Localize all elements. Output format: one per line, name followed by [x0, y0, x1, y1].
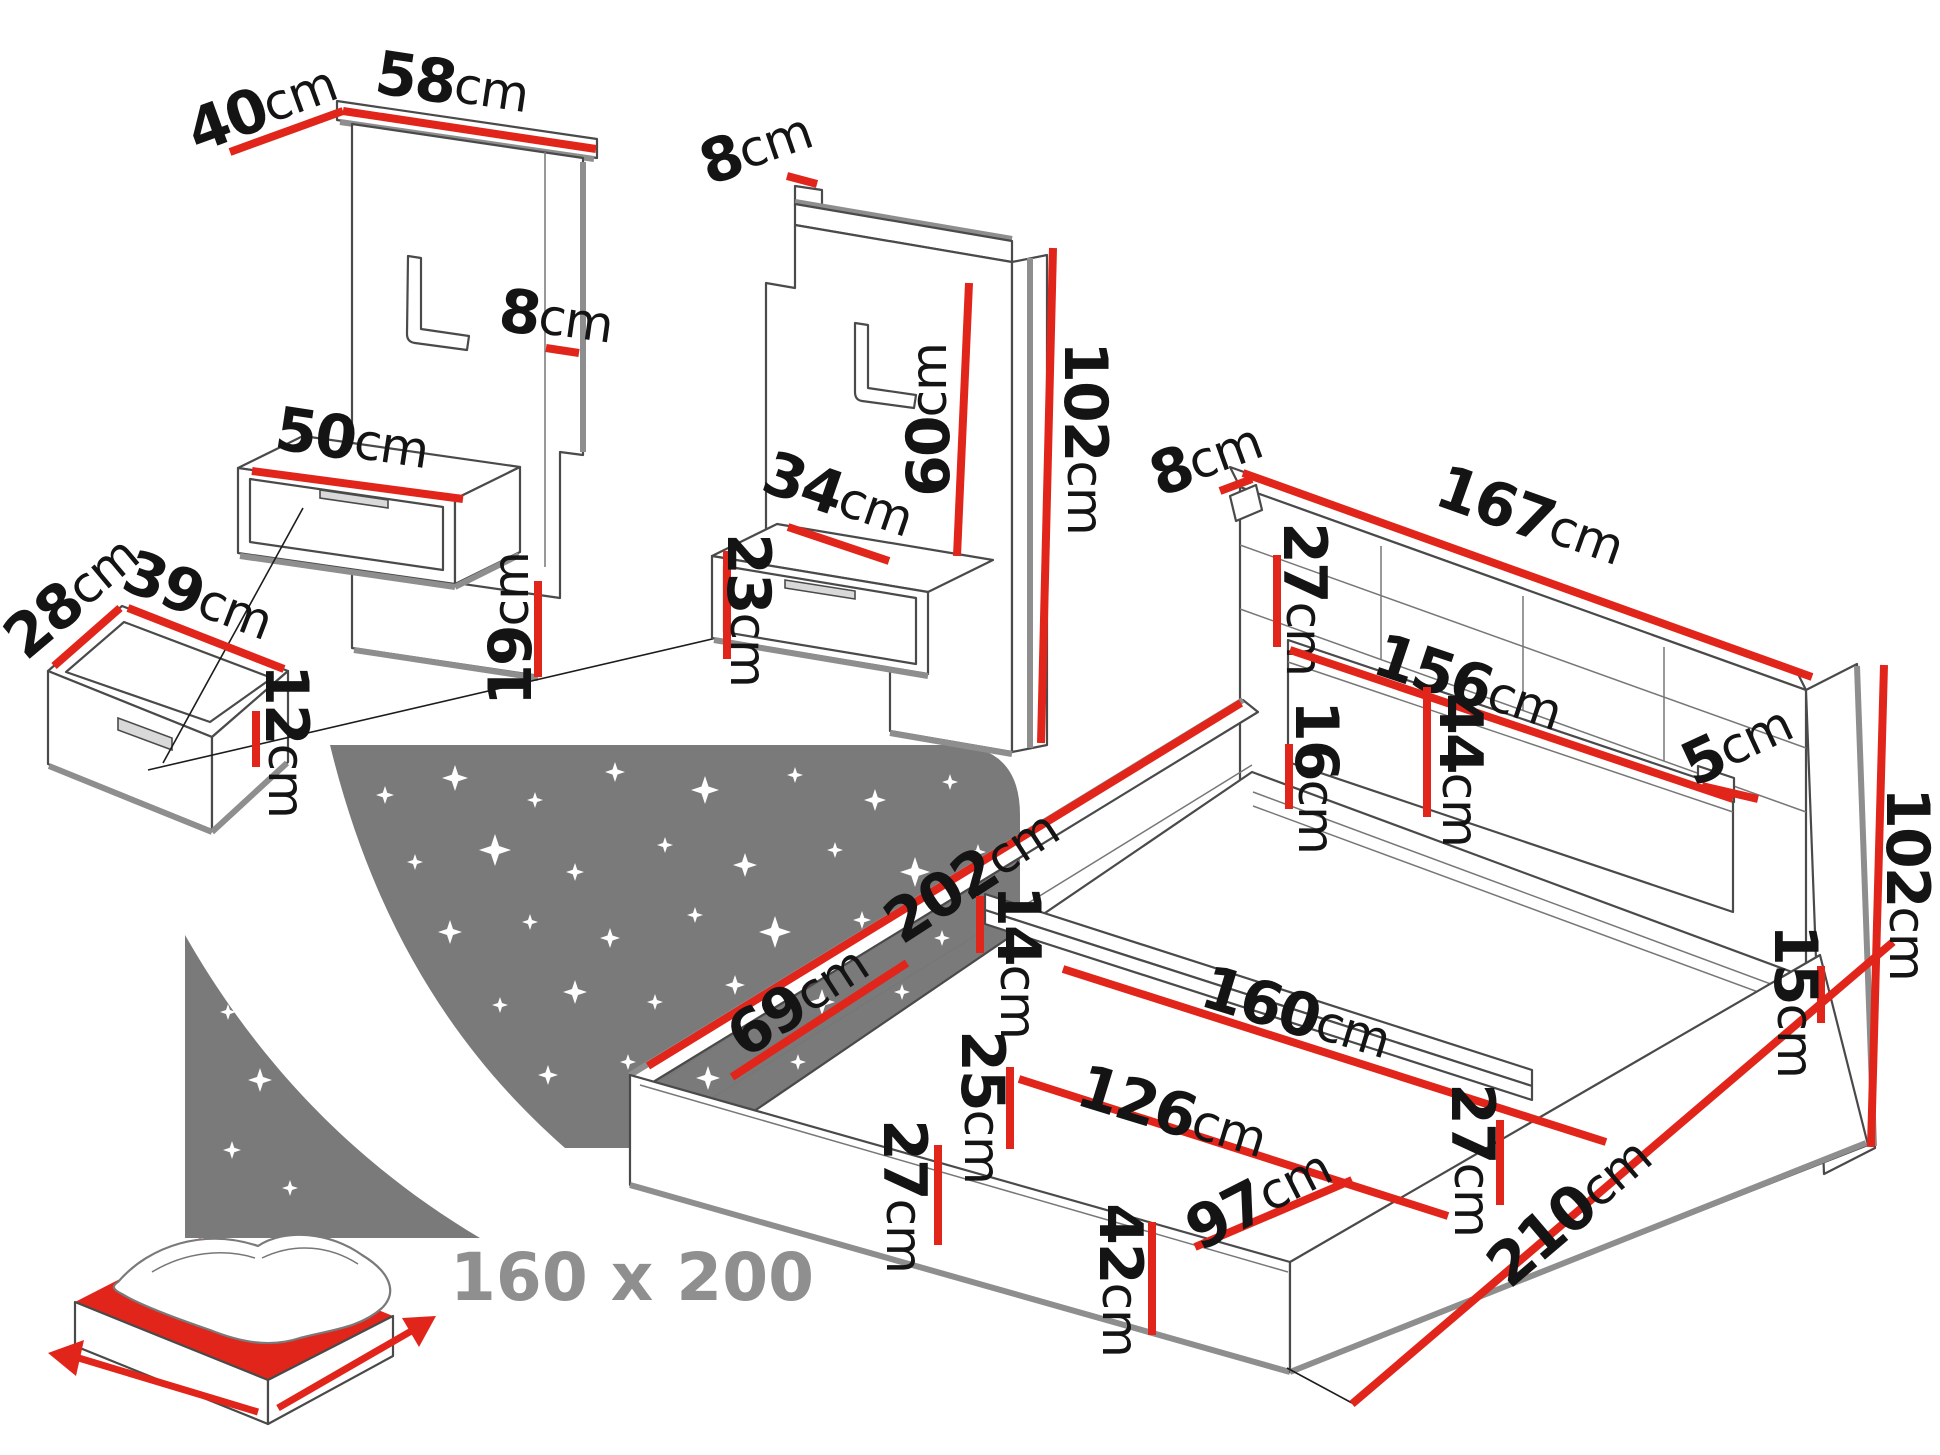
bedside-panel-front-view — [238, 101, 597, 678]
dimension-panel2-thickness: 8cm — [691, 96, 822, 199]
svg-text:27cm: 27cm — [1437, 1083, 1507, 1237]
svg-text:60cm: 60cm — [894, 343, 964, 497]
dimension-drawer-height: 12cm — [251, 664, 321, 818]
svg-text:102cm: 102cm — [1872, 787, 1940, 980]
dimension-panel2-shelf-height: 23cm — [713, 533, 783, 687]
svg-text:25cm: 25cm — [947, 1030, 1017, 1184]
svg-text:40cm: 40cm — [178, 49, 346, 167]
furniture-dimension-diagram: 160 x 200 — [0, 0, 1940, 1455]
svg-text:102cm: 102cm — [1050, 341, 1120, 534]
dimension-frame-front-height: 27cm — [869, 1119, 939, 1273]
dimension-frame-right-height: 27cm — [1437, 1083, 1507, 1237]
dimension-panel1-depth: 40cm — [178, 49, 346, 167]
svg-text:27cm: 27cm — [869, 1119, 939, 1273]
dimension-side-rail-height: 15cm — [1760, 924, 1830, 1078]
dimension-panel2-height: 102cm — [1041, 248, 1120, 743]
svg-text:23cm: 23cm — [713, 533, 783, 687]
dimension-bed-total-height: 102cm — [1871, 665, 1940, 1147]
dimension-panel1-foot-height: 19cm — [476, 552, 546, 706]
svg-text:19cm: 19cm — [476, 552, 546, 706]
dimension-mid-rail-height: 14cm — [980, 885, 1053, 1039]
svg-text:12cm: 12cm — [251, 664, 321, 818]
diagram-page: 160 x 200 — [0, 0, 1940, 1455]
svg-text:42cm: 42cm — [1085, 1203, 1155, 1357]
svg-text:8cm: 8cm — [691, 96, 822, 199]
dimension-side-box-depth: 25cm — [947, 1030, 1017, 1184]
dimension-headboard-recess: 44cm — [1425, 687, 1495, 847]
svg-text:15cm: 15cm — [1760, 924, 1830, 1078]
svg-text:44cm: 44cm — [1425, 693, 1495, 847]
mattress-size-label: 160 x 200 — [450, 1239, 814, 1316]
length-extension-line — [1287, 1368, 1352, 1403]
dimension-frame-base-height: 42cm — [1085, 1203, 1155, 1357]
svg-text:14cm: 14cm — [983, 885, 1053, 1039]
svg-text:16cm: 16cm — [1281, 700, 1351, 854]
dimension-headboard-lower: 16cm — [1281, 700, 1351, 854]
